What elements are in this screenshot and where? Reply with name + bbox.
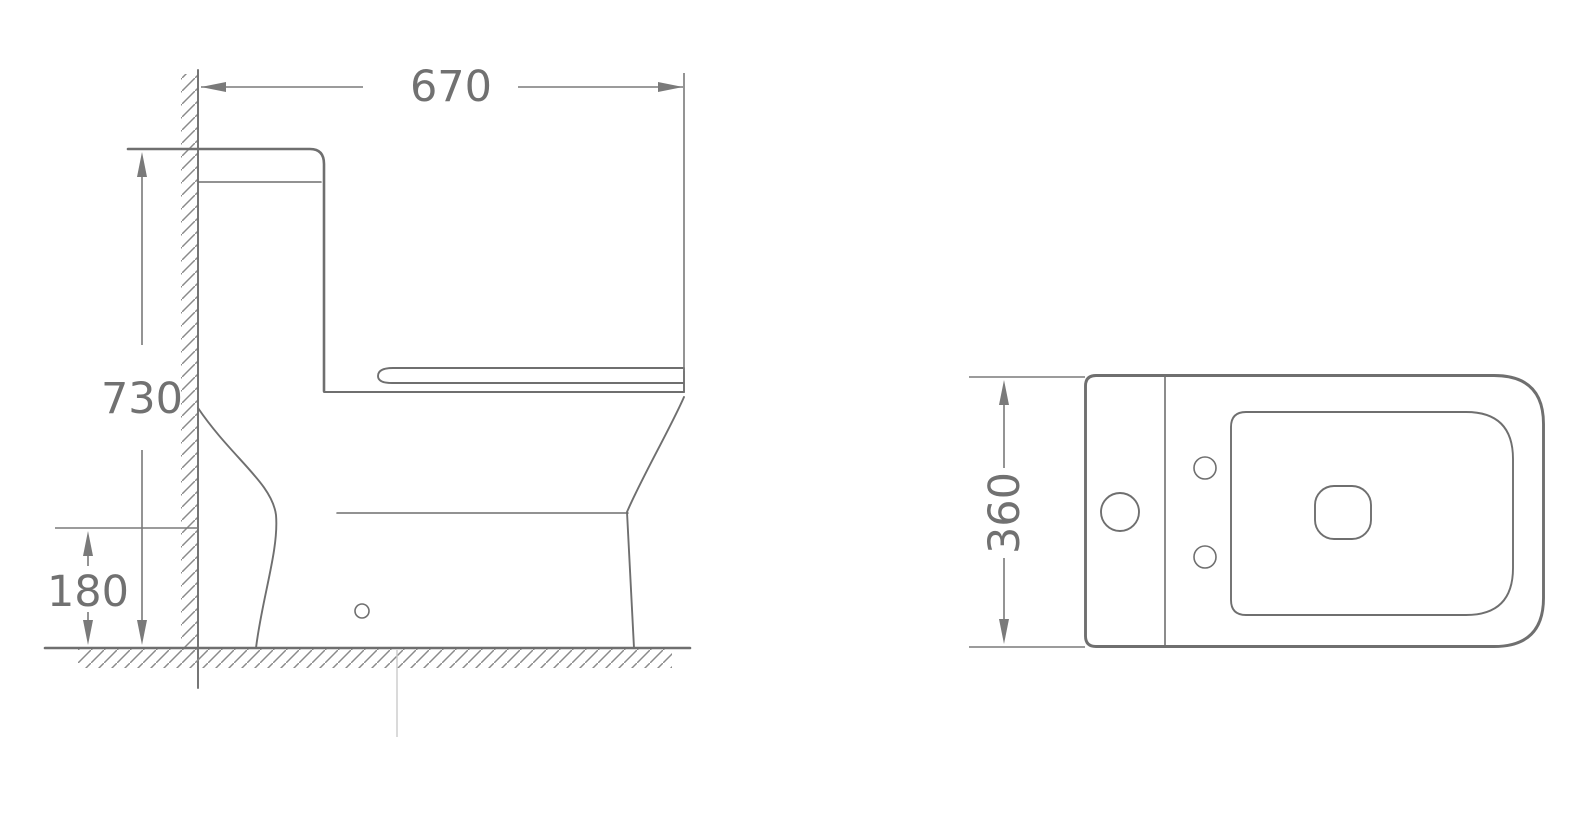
dim-180-arrow-bottom bbox=[83, 620, 93, 645]
hinge-hole-bottom bbox=[1194, 546, 1216, 568]
dim-360: 360 bbox=[969, 377, 1085, 647]
dim-730-arrow-bottom bbox=[137, 620, 147, 645]
top-view: 360 bbox=[969, 376, 1544, 648]
bolt-cap-circle bbox=[355, 604, 369, 618]
dim-180: 180 bbox=[47, 528, 198, 645]
dim-730-label: 730 bbox=[101, 374, 183, 424]
side-view: 670 730 180 bbox=[45, 62, 690, 737]
dim-670-arrow-left bbox=[201, 82, 226, 92]
dim-360-arrow-top bbox=[999, 380, 1009, 405]
dim-180-arrow-top bbox=[83, 531, 93, 556]
dim-670: 670 bbox=[201, 62, 684, 371]
dim-730-arrow-top bbox=[137, 152, 147, 177]
technical-drawing: 670 730 180 bbox=[0, 0, 1594, 831]
ground-hatch bbox=[78, 649, 672, 668]
flush-button-circle bbox=[1101, 493, 1139, 531]
bowl-back-curve bbox=[198, 408, 276, 648]
hinge-hole-top bbox=[1194, 457, 1216, 479]
dim-180-label: 180 bbox=[47, 567, 129, 617]
dim-670-arrow-right bbox=[658, 82, 683, 92]
wall-hatch bbox=[181, 74, 198, 654]
dim-670-label: 670 bbox=[410, 62, 492, 112]
tank-outline bbox=[128, 149, 324, 391]
bowl-front-profile bbox=[627, 397, 684, 648]
seat-lid-outline bbox=[1231, 412, 1513, 615]
drawing-canvas: 670 730 180 bbox=[0, 0, 1594, 831]
dim-360-arrow-bottom bbox=[999, 619, 1009, 644]
dim-360-label: 360 bbox=[980, 472, 1030, 554]
seat-profile bbox=[378, 368, 684, 392]
lid-center-detail bbox=[1315, 486, 1371, 539]
